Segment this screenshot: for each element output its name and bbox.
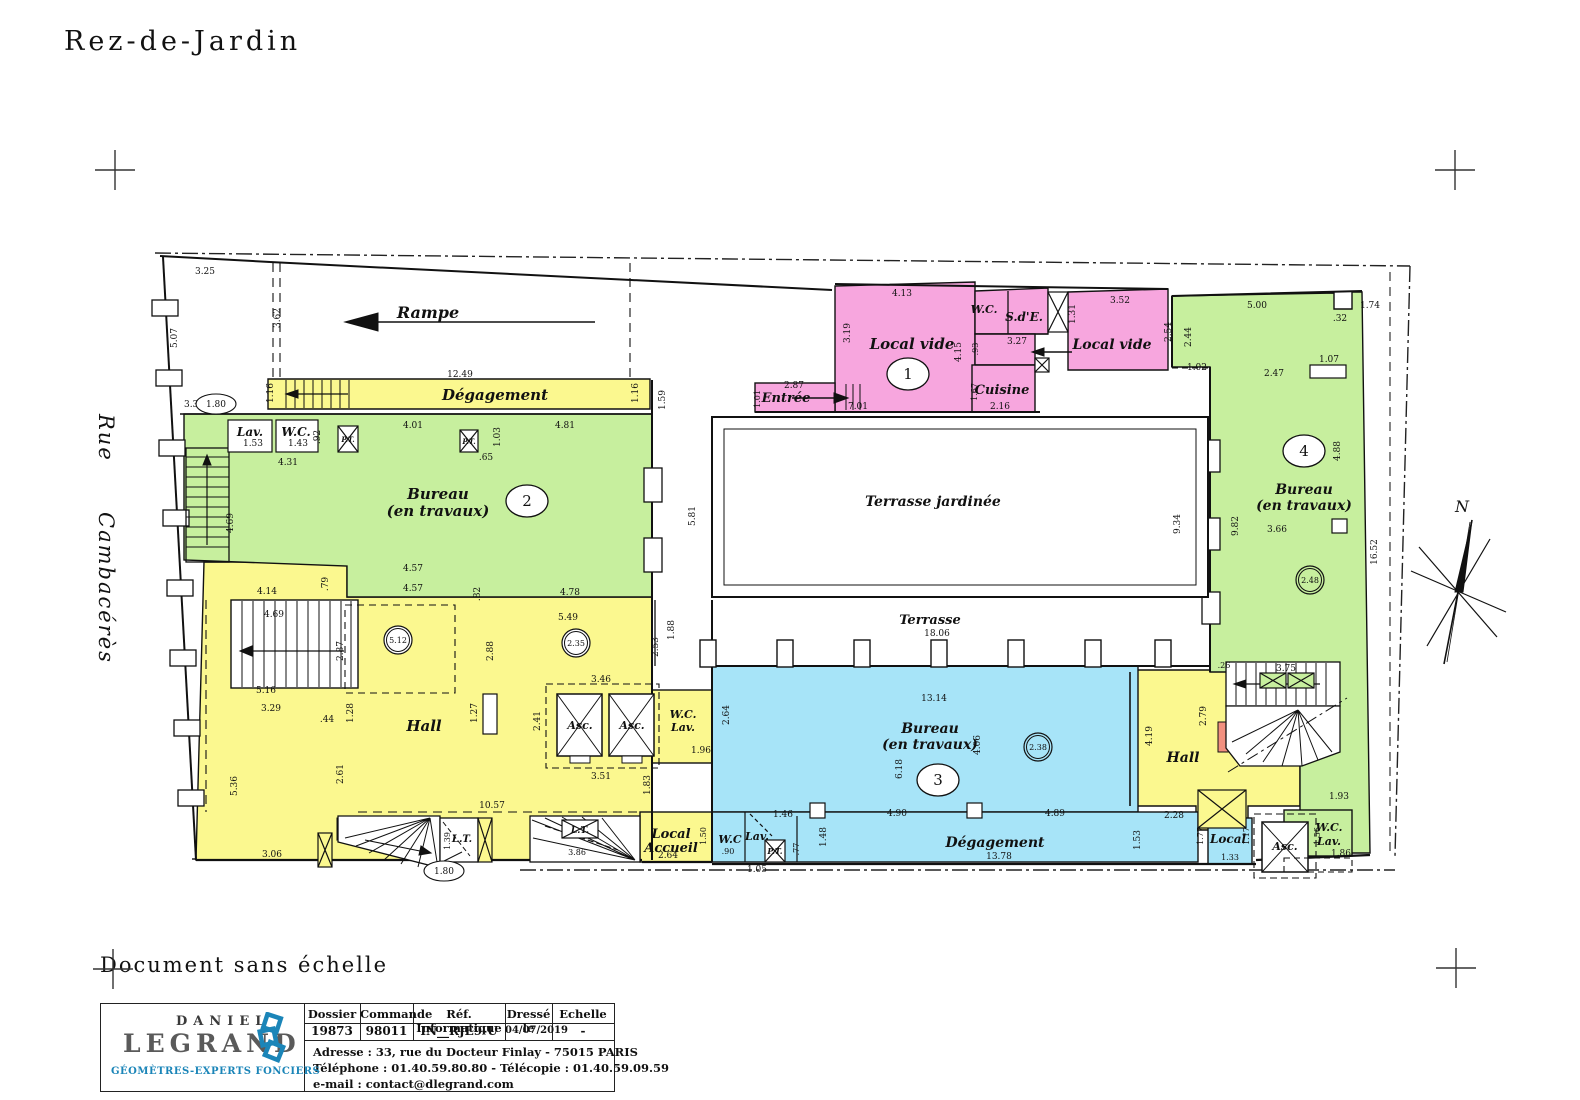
dim-label: 1.50	[699, 827, 708, 845]
room-label-bureau2: Bureau	[406, 485, 469, 503]
dim-label: 13.14	[921, 694, 947, 704]
room-label-bureau4: Bureau	[1274, 482, 1333, 498]
dim-label: 2.87	[784, 381, 804, 391]
dim-label: 4.13	[892, 289, 912, 299]
dim-label: 2.53	[651, 637, 661, 657]
dim-label: 4.88	[1333, 441, 1343, 461]
room-label-asc2: Asc.	[618, 719, 644, 732]
dim-label: 13.78	[986, 852, 1012, 862]
room-label-asc1: Asc.	[566, 719, 592, 732]
dim-label: 2.88	[486, 641, 496, 661]
dim-label: 4.14	[257, 587, 277, 597]
dim-label: .93	[971, 343, 980, 356]
tb-email: e-mail : contact@dlegrand.com	[313, 1077, 514, 1091]
dim-label: 1.28	[346, 703, 356, 723]
dim-label: 3.52	[1110, 296, 1130, 306]
dim-label: 3.62	[273, 308, 283, 328]
dim-label: 3.19	[843, 323, 853, 343]
room-label-wc-blue: W.C	[718, 833, 741, 846]
room-label-bureau3: Bureau	[900, 721, 959, 737]
room-label-bureau4-sub: (en travaux)	[1256, 498, 1352, 514]
room-label-local-accueil: Local	[650, 827, 690, 842]
dim-label: 5.49	[558, 613, 578, 623]
dim-label: 3.66	[1267, 525, 1287, 535]
dim-label: 12.49	[447, 370, 473, 380]
oval-dim: 1.80	[434, 867, 454, 877]
dim-label: 4.78	[560, 588, 580, 598]
room-label-accueil: Accueil	[642, 841, 698, 856]
room-number-4: 4	[1299, 442, 1309, 460]
dim-label: .79	[321, 577, 331, 592]
dim-label: 18.06	[924, 629, 950, 639]
dim-label: 4.81	[555, 421, 575, 431]
dim-label: 2.47	[1264, 369, 1284, 379]
tb-value-echelle: -	[552, 1024, 614, 1038]
dim-label: 4.69	[264, 610, 284, 620]
dim-label: .32	[1333, 314, 1347, 324]
room-label-lav-right: Lav.	[1316, 835, 1341, 848]
column-mark: 2.35	[567, 639, 585, 648]
room-label-wc: W.C.	[281, 425, 310, 439]
dim-label: 1.02	[1187, 363, 1207, 373]
floor-plan-sheet: Rez-de-Jardin Rue Cambacérès Document sa…	[0, 0, 1580, 1100]
dim-label: 4.57	[403, 584, 423, 594]
dim-label: 2.44	[1184, 327, 1194, 347]
dim-label: 4.19	[1145, 726, 1155, 746]
column-mark: 5.12	[389, 636, 407, 645]
dim-label: 7.01	[848, 402, 868, 412]
room-label-bureau2-sub: (en travaux)	[387, 502, 490, 520]
dim-label: .26	[1218, 661, 1231, 670]
room-number-1: 1	[903, 365, 913, 383]
tb-value-commande: 98011	[360, 1024, 413, 1038]
dim-label: 1.83	[643, 775, 653, 795]
dim-label: 1.43	[288, 439, 308, 449]
dim-label: 9.82	[1231, 516, 1241, 536]
dim-label: 3.75	[1276, 664, 1296, 674]
dim-label: 1.77	[1196, 827, 1205, 845]
dim-label: 4.15	[954, 342, 964, 362]
dim-label: 9.34	[1173, 514, 1183, 534]
dim-label: 3.46	[591, 675, 611, 685]
room-number-2: 2	[522, 492, 532, 510]
dim-label: 1.07	[1319, 355, 1339, 365]
room-label-lav: Lav.	[236, 425, 263, 439]
dim-label: 1.05	[747, 865, 767, 875]
column-mark: 2.48	[1301, 576, 1319, 585]
dim-label: 1.03	[493, 427, 503, 447]
column-mark: 2.38	[1029, 743, 1047, 752]
dim-label: 10.57	[479, 801, 505, 811]
room-label-degagement-top: Dégagement	[441, 386, 548, 404]
dim-label: 3.29	[261, 704, 281, 714]
dim-label: 1.16	[266, 383, 276, 403]
dim-label: 4.01	[403, 421, 423, 431]
dim-label: 1.33	[1221, 853, 1239, 862]
dim-label: 4.89	[1045, 809, 1065, 819]
dim-label: 3.51	[591, 772, 611, 782]
dim-label: 1.39	[443, 832, 452, 850]
dim-label: .44	[320, 715, 335, 725]
dim-label: 1.74	[1360, 301, 1380, 311]
room-label-terrasse-jardinee: Terrasse jardinée	[865, 494, 1001, 510]
dim-label: .77	[792, 843, 801, 856]
dim-label: .65	[479, 453, 494, 463]
room-label-wc-pink: W.C.	[971, 303, 998, 316]
oval-dim: 1.80	[206, 400, 226, 410]
dim-label: 5.81	[688, 506, 698, 526]
dim-label: 4.57	[403, 564, 423, 574]
north-arrow	[1411, 520, 1506, 664]
room-label-pt1: P.T.	[340, 435, 354, 444]
dim-label: .90	[722, 847, 735, 856]
terrasse-columns	[700, 640, 1171, 667]
room-label-hall-right: Hall	[1166, 750, 1200, 766]
dim-label: .82	[473, 587, 483, 601]
room-label-wc-mid: W.C.	[670, 708, 697, 721]
room-label-asc-right: Asc.	[1271, 840, 1297, 853]
dim-label: 4.90	[887, 809, 907, 819]
dim-label: 2.61	[336, 764, 346, 784]
room-label-degagement-blue: Dégagement	[945, 835, 1046, 851]
title-block: Dossier Commande Réf. Informatique Dress…	[100, 1003, 615, 1092]
room-label-cuisine: Cuisine	[975, 383, 1030, 398]
rampe-arrow	[345, 313, 378, 331]
brand-logo-icon	[249, 1012, 291, 1064]
dim-label: 4.31	[278, 458, 298, 468]
dim-label: 3.06	[262, 850, 282, 860]
dim-label: 1.86	[1331, 849, 1351, 859]
tb-header-echelle: Echelle	[552, 1007, 614, 1021]
tb-header-commande: Commande	[360, 1007, 413, 1021]
room-label-hall: Hall	[405, 717, 442, 735]
plan-drawing: 3.25 5.07 3.62 12.49 1.16 1.16 1.59 3.38…	[0, 0, 1580, 1100]
dim-label: 5.00	[1247, 301, 1267, 311]
dim-label: 1.16	[631, 383, 641, 403]
tb-value-ref: IN__RJE9-U	[413, 1024, 505, 1038]
dim-label: 3.86	[568, 848, 586, 857]
dim-label: 1.53	[243, 439, 263, 449]
tb-value-dossier: 19873	[304, 1024, 360, 1038]
room-label-local-vide-2: Local vide	[1071, 337, 1151, 353]
dim-label: 1.27	[470, 703, 480, 723]
dim-label: 1.31	[1068, 304, 1078, 324]
room-label-pt2: P.T.	[461, 437, 475, 446]
room-label-lav-blue: Lav.	[744, 830, 769, 843]
dim-label: 6.18	[895, 759, 905, 779]
dim-label: 5.36	[230, 776, 240, 796]
room-label-bureau3-sub: (en travaux)	[882, 737, 978, 753]
dim-label: 2.54	[1164, 322, 1174, 342]
brand-tagline: GÉOMÈTRES-EXPERTS FONCIERS	[111, 1066, 320, 1077]
room-label-local-right: Local	[1209, 832, 1247, 846]
dim-label: 2.87	[336, 641, 346, 661]
tb-value-dresse: 04/07/2019	[505, 1025, 552, 1036]
dim-label: 3.25	[195, 267, 215, 277]
dim-label: 1.93	[1329, 792, 1349, 802]
tb-header-dossier: Dossier	[304, 1007, 360, 1021]
room-label-wc-right: W.C.	[1316, 821, 1343, 834]
tb-phone: Téléphone : 01.40.59.80.80 - Télécopie :…	[313, 1061, 669, 1075]
room-number-3: 3	[933, 771, 943, 789]
dim-label: 2.79	[1199, 706, 1209, 726]
dim-label: 3.27	[1007, 337, 1027, 347]
dim-label: 16.52	[1370, 539, 1380, 565]
room-label-sde: S.d'E.	[1005, 310, 1043, 324]
north-label: N	[1454, 497, 1470, 516]
room-label-pt-blue: P.T.	[766, 846, 782, 856]
dim-label: 1.53	[1133, 830, 1143, 850]
dim-label: 1.46	[773, 810, 793, 820]
dim-label: 2.28	[1164, 811, 1184, 821]
dim-label: 2.41	[533, 711, 543, 731]
dim-label: 5.16	[256, 686, 276, 696]
dim-label: 1.88	[667, 620, 677, 640]
dim-label: 2.64	[722, 705, 732, 725]
tb-address: Adresse : 33, rue du Docteur Finlay - 75…	[313, 1045, 638, 1059]
dim-label: 1.96	[691, 746, 711, 756]
dim-label: 1.48	[819, 827, 829, 847]
dim-label: 4.69	[226, 513, 236, 533]
dim-label: 2.16	[990, 402, 1010, 412]
dim-label: 5.07	[170, 328, 180, 348]
dim-label: .92	[313, 430, 323, 444]
room-label-entree: Entrée	[761, 391, 811, 406]
dim-label: 1.59	[658, 390, 668, 410]
room-label-lt2: L.T.	[570, 826, 589, 836]
room-label-rampe: Rampe	[396, 303, 459, 322]
room-label-local-vide-1: Local vide	[869, 335, 955, 353]
room-label-lt1: L.T.	[451, 834, 472, 845]
room-label-terrasse: Terrasse	[899, 613, 960, 628]
room-label-lav-mid: Lav.	[670, 721, 695, 734]
